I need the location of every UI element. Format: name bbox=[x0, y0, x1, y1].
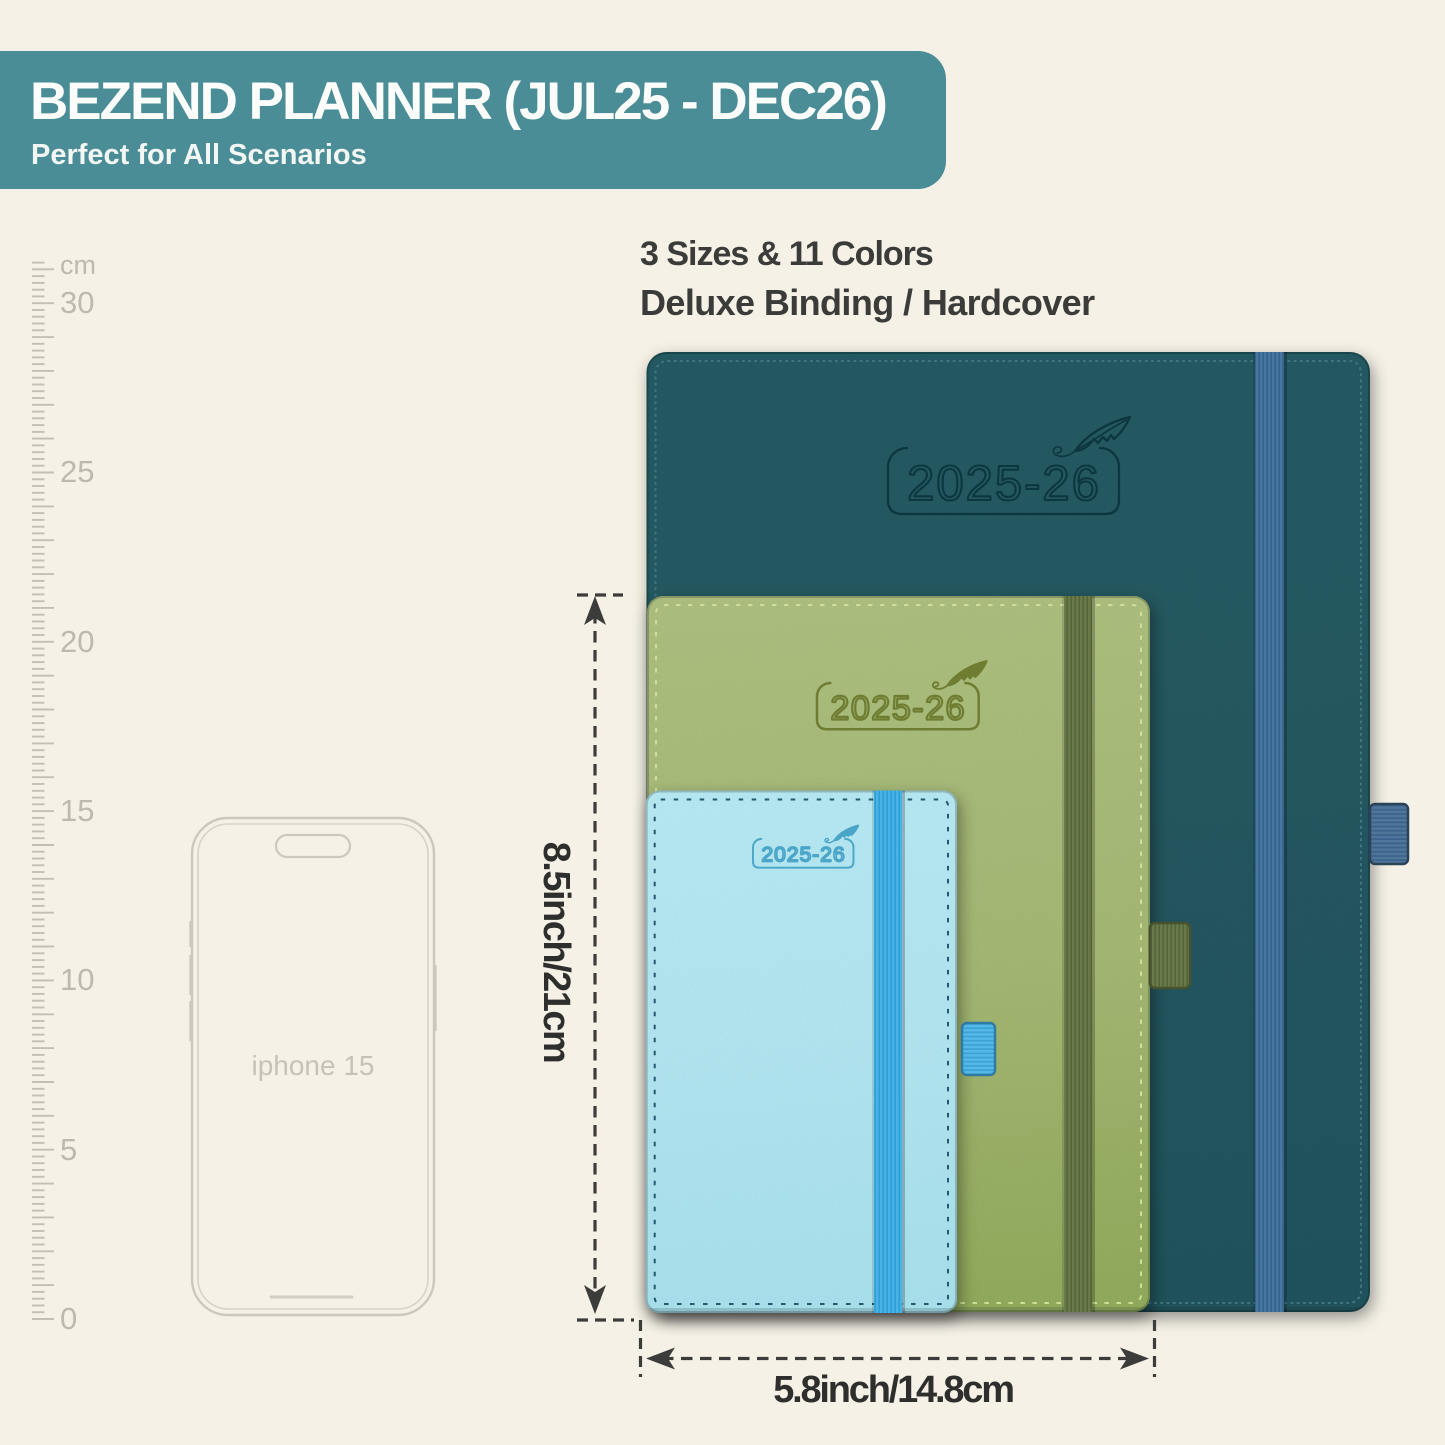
svg-text:5.8inch/14.8cm: 5.8inch/14.8cm bbox=[773, 1369, 1013, 1411]
svg-text:2025-26: 2025-26 bbox=[761, 843, 845, 867]
svg-text:8.5inch/21cm: 8.5inch/21cm bbox=[535, 842, 577, 1063]
svg-text:30: 30 bbox=[60, 285, 94, 320]
svg-text:5: 5 bbox=[60, 1132, 77, 1167]
svg-text:25: 25 bbox=[60, 454, 94, 489]
svg-text:2025-26: 2025-26 bbox=[830, 689, 966, 727]
svg-text:15: 15 bbox=[60, 793, 94, 828]
svg-text:2025-26: 2025-26 bbox=[907, 457, 1101, 511]
svg-text:cm: cm bbox=[60, 250, 96, 280]
svg-text:10: 10 bbox=[60, 962, 94, 997]
svg-text:20: 20 bbox=[60, 624, 94, 659]
svg-text:0: 0 bbox=[60, 1301, 77, 1336]
svg-text:iphone 15: iphone 15 bbox=[251, 1050, 374, 1081]
